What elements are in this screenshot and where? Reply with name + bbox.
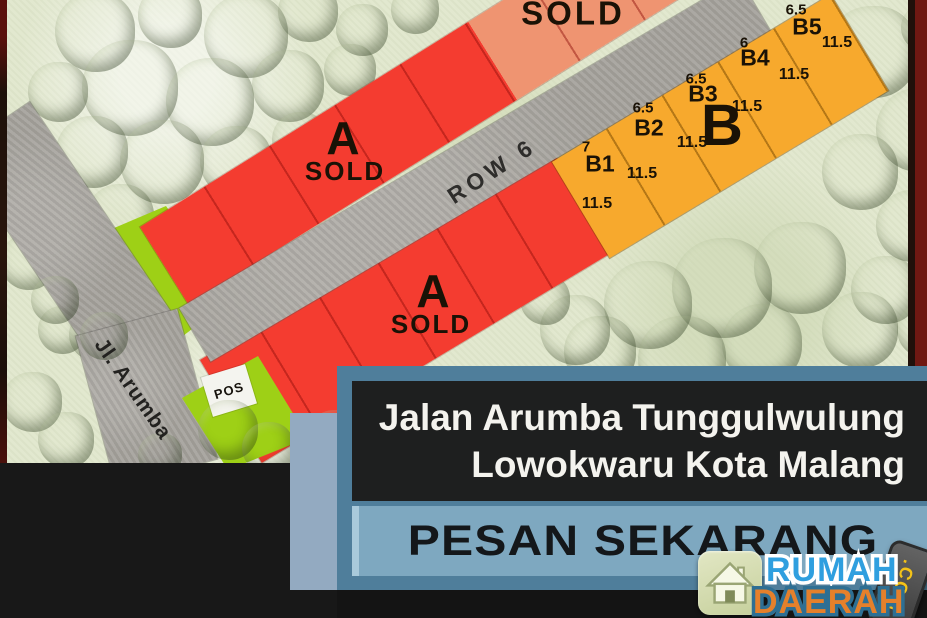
section-a-lower-label: A — [416, 268, 449, 314]
tree — [138, 0, 202, 48]
sold-strip-status: SOLD — [521, 0, 625, 30]
address-line2: Lowokwaru Kota Malang — [352, 441, 905, 488]
property-poster: POS A SOLD A SOLD SOLD ROW 6 Jl. Arumba … — [0, 0, 927, 618]
tree — [38, 412, 94, 468]
plot-b1-width: 7 — [582, 140, 590, 155]
brand-logo[interactable]: RUMAH DAERAH .COM — [690, 540, 927, 618]
price-panel: Harga mulai dari RP 775 — [0, 463, 337, 618]
plot-b5-width: 6.5 — [786, 3, 807, 18]
plot-b5-depth: 11.5 — [822, 35, 852, 51]
section-a-upper-label: A — [326, 115, 359, 161]
plot-b1-depth: 11.5 — [582, 196, 612, 212]
brand-word-daerah: DAERAH — [753, 585, 904, 618]
plot-b2-width: 6.5 — [633, 101, 654, 116]
section-b-depth: 11.5 — [732, 99, 762, 115]
section-a-upper-status: SOLD — [305, 158, 385, 184]
plot-b1-label: B1 — [585, 153, 614, 176]
plot-b4-width: 6 — [740, 36, 748, 51]
plot-b3-depth: 11.5 — [677, 135, 707, 151]
map-right-border — [908, 0, 927, 368]
plot-b2-label: B2 — [634, 117, 663, 140]
tree — [252, 50, 324, 122]
address-line1: Jalan Arumba Tunggulwulung — [352, 394, 905, 441]
plot-b2-depth: 11.5 — [627, 166, 657, 182]
map-left-border — [0, 0, 7, 464]
brand-word-rumah: RUMAH — [766, 553, 898, 587]
tree — [754, 222, 846, 314]
tree — [391, 0, 439, 34]
address-banner: Jalan Arumba Tunggulwulung Lowokwaru Kot… — [352, 381, 927, 501]
guard-post-label: POS — [212, 379, 246, 402]
plot-b5-label: B5 — [792, 16, 821, 39]
plot-b3-width: 6.5 — [686, 72, 707, 87]
tree — [31, 276, 79, 324]
section-a-lower-status: SOLD — [391, 311, 471, 337]
tree — [822, 292, 898, 368]
plot-b4-depth: 11.5 — [779, 67, 809, 83]
